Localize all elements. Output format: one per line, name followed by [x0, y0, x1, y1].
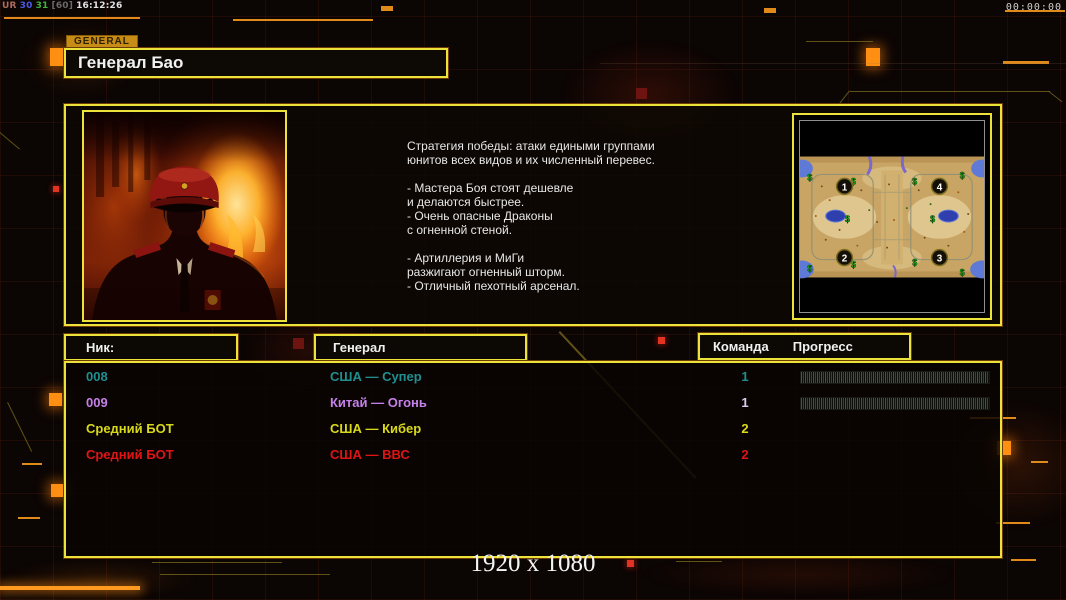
start-position-3: 3: [930, 248, 949, 267]
player-team: 2: [734, 421, 756, 436]
start-position-2: 2: [835, 248, 854, 267]
player-nick: Средний БОТ: [86, 421, 174, 436]
player-general: США — Супер: [330, 369, 422, 384]
supply-dollar-icon: $: [930, 214, 935, 224]
players-panel: 008 США — Супер 1 009 Китай — Огонь 1 Ср…: [64, 361, 1002, 558]
supply-dollar-icon: $: [845, 214, 850, 224]
strategy-text: Стратегия победы: атаки едиными группами…: [407, 139, 727, 293]
debug-token: 30: [20, 1, 33, 11]
strategy-line: с огненной стеной.: [407, 223, 727, 237]
svg-text:4: 4: [937, 182, 943, 193]
minimap-image: $ $ $ $ $ $ $ $ $ $ 1: [800, 121, 984, 312]
start-position-1: 1: [835, 177, 854, 196]
debug-token: UR: [2, 1, 17, 11]
supply-dollar-icon: $: [807, 263, 812, 273]
header-general: Генерал: [314, 334, 527, 361]
supply-dollar-icon: $: [960, 170, 965, 180]
player-team: 1: [734, 395, 756, 410]
player-row[interactable]: 008 США — Супер 1: [66, 365, 1000, 389]
strategy-line: разжигают огненный шторм.: [407, 265, 727, 279]
header-nick-label: Ник:: [86, 340, 114, 355]
player-general: США — ВВС: [330, 447, 410, 462]
debug-stats-overlay: UR3031[60]16:12:26: [2, 1, 125, 11]
debug-token: [60]: [52, 1, 74, 11]
general-select-box[interactable]: Генерал Бао: [64, 48, 448, 78]
player-general: Китай — Огонь: [330, 395, 427, 410]
match-timer: 00:00:00: [1006, 2, 1062, 13]
strategy-line: [407, 167, 727, 181]
svg-text:2: 2: [842, 254, 848, 265]
player-nick: 008: [86, 369, 108, 384]
strategy-line: - Очень опасные Драконы: [407, 209, 727, 223]
progress-bar: [800, 397, 990, 410]
supply-dollar-icon: $: [807, 172, 812, 182]
svg-text:3: 3: [937, 254, 943, 265]
start-position-4: 4: [930, 177, 949, 196]
debug-token: 16:12:26: [76, 1, 122, 11]
strategy-line: и делаются быстрее.: [407, 195, 727, 209]
player-general: США — Кибер: [330, 421, 421, 436]
strategy-line: юнитов всех видов и их численный перевес…: [407, 153, 727, 167]
player-nick: 009: [86, 395, 108, 410]
svg-text:1: 1: [842, 182, 848, 193]
player-row[interactable]: Средний БОТ США — ВВС 2: [66, 443, 1000, 467]
strategy-line: [407, 237, 727, 251]
player-team: 1: [734, 369, 756, 384]
player-row[interactable]: Средний БОТ США — Кибер 2: [66, 417, 1000, 441]
header-team-label: Команда: [713, 339, 769, 354]
player-nick: Средний БОТ: [86, 447, 174, 462]
strategy-line: - Мастера Боя стоят дешевле: [407, 181, 727, 195]
resolution-label: 1920 x 1080: [0, 550, 1066, 578]
header-progress-label: Прогресс: [793, 339, 853, 354]
header-nick: Ник:: [64, 334, 238, 361]
player-team: 2: [734, 447, 756, 462]
supply-dollar-icon: $: [912, 176, 917, 186]
general-portrait-image: [84, 112, 285, 320]
map-preview-inner: $ $ $ $ $ $ $ $ $ $ 1: [799, 120, 985, 313]
cap-badge-icon: [181, 183, 187, 189]
general-title: Генерал Бао: [78, 53, 183, 73]
debug-token: 31: [36, 1, 49, 11]
supply-dollar-icon: $: [960, 267, 965, 277]
strategy-line: Стратегия победы: атаки едиными группами: [407, 139, 727, 153]
strategy-line: - Отличный пехотный арсенал.: [407, 279, 727, 293]
progress-bar: [800, 371, 990, 384]
general-portrait: [82, 110, 287, 322]
header-general-label: Генерал: [333, 340, 385, 355]
game-lobby-screen: UR3031[60]16:12:26 00:00:00 GENERAL Гене…: [0, 0, 1066, 600]
header-team-progress: КомандаПрогресс: [698, 333, 911, 360]
player-row[interactable]: 009 Китай — Огонь 1: [66, 391, 1000, 415]
strategy-line: - Артиллерия и МиГи: [407, 251, 727, 265]
supply-dollar-icon: $: [912, 257, 917, 267]
map-preview[interactable]: $ $ $ $ $ $ $ $ $ $ 1: [792, 113, 992, 320]
